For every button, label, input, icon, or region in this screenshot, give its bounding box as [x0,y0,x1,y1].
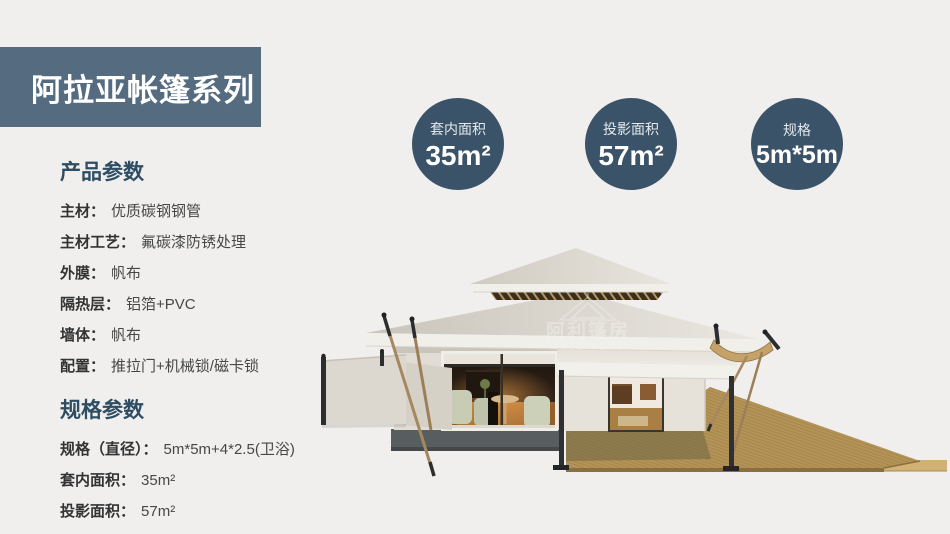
spec-row-value: 帆布 [111,327,141,344]
spec-row-label: 主材工艺： [60,234,135,251]
watermark-cn: 阿利篷房 [546,319,630,342]
spec-row-value: 铝箔+PVC [126,296,196,313]
stat-label: 投影面积 [603,119,659,139]
spec-row-label: 隔热层： [60,296,120,313]
stat-label: 套内面积 [430,119,486,139]
spec-row-value: 5m*5m+4*2.5(卫浴) [164,441,295,458]
spec-row: 规格（直径）：5m*5m+4*2.5(卫浴) [60,438,350,459]
series-title: 阿拉亚帐篷系列 [0,65,255,110]
spec-row-label: 规格（直径）： [60,441,158,458]
spec-row-label: 投影面积： [60,503,135,520]
series-title-banner: 阿拉亚帐篷系列 [0,47,261,127]
spec-row-value: 35m² [141,472,175,489]
spec-row-value: 推拉门+机械锁/磁卡锁 [111,358,259,375]
spec-row: 外膜：帆布 [60,262,350,283]
stat-label: 规格 [783,120,811,140]
tent-annex [562,371,705,431]
page: 阿拉亚帐篷系列 套内面积 35m² 投影面积 57m² 规格 5m*5m 产品参… [0,0,950,534]
spec-row: 隔热层：铝箔+PVC [60,293,350,314]
spec-row-label: 墙体： [60,327,105,344]
tent-stone-base [391,429,564,451]
spec-row: 配置：推拉门+机械锁/磁卡锁 [60,355,350,376]
spec-row: 主材：优质碳钢钢管 [60,200,350,221]
tent-window [441,351,558,431]
product-params-heading: 产品参数 [60,156,350,186]
tent-top-roof [470,248,671,300]
spec-panel: 产品参数 主材：优质碳钢钢管 主材工艺：氟碳漆防锈处理 外膜：帆布 隔热层：铝箔… [60,156,350,534]
spec-row-value: 57m² [141,503,175,520]
stat-value: 5m*5m [756,143,838,168]
spec-row: 主材工艺：氟碳漆防锈处理 [60,231,350,252]
spec-row-value: 氟碳漆防锈处理 [141,234,246,251]
spec-row: 套内面积：35m² [60,469,350,490]
spec-row: 投影面积：57m² [60,500,350,521]
spec-row-label: 主材： [60,203,105,220]
watermark-en: WELL TENT [549,342,626,352]
stat-circle-projection-area: 投影面积 57m² [585,98,677,190]
stat-value: 57m² [598,142,663,170]
spec-row-value: 优质碳钢钢管 [111,203,201,220]
spec-row: 墙体：帆布 [60,324,350,345]
tent-illustration: 阿利篷房 WELL TENT [315,240,950,512]
spec-params-heading: 规格参数 [60,394,350,424]
stat-circle-size: 规格 5m*5m [751,98,843,190]
stat-circle-inner-area: 套内面积 35m² [412,98,504,190]
spec-row-label: 套内面积： [60,472,135,489]
spec-row-label: 配置： [60,358,105,375]
spec-row-value: 帆布 [111,265,141,282]
stat-value: 35m² [425,142,490,170]
spec-row-label: 外膜： [60,265,105,282]
